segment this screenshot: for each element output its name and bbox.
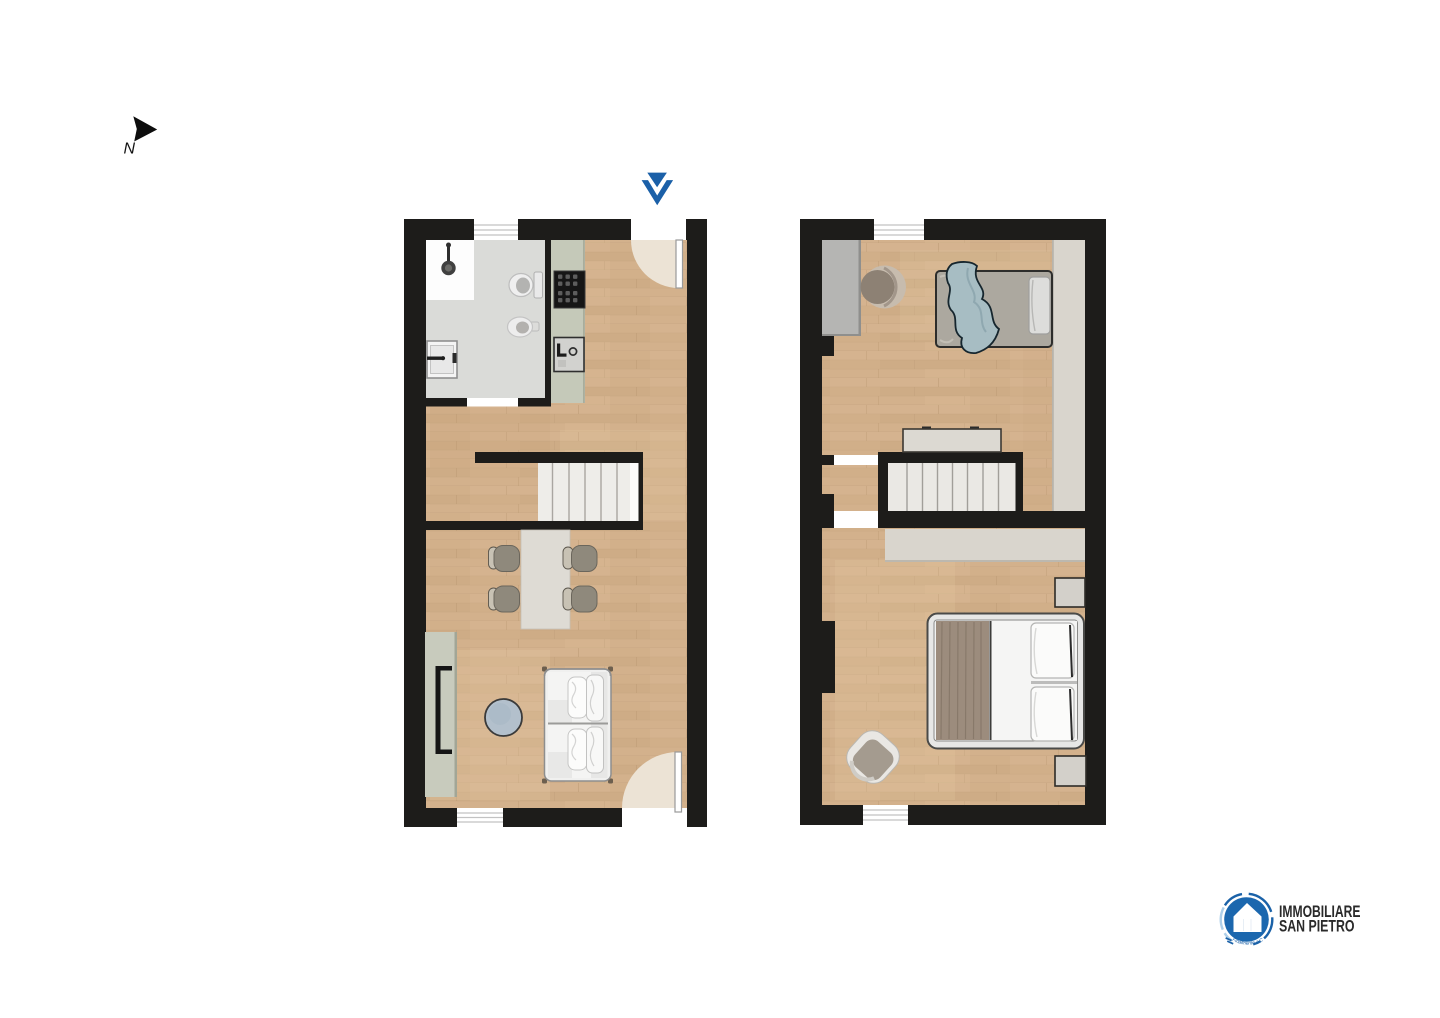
svg-text:N: N bbox=[124, 141, 136, 158]
svg-text:SAN PIETRO: SAN PIETRO bbox=[1279, 918, 1355, 936]
